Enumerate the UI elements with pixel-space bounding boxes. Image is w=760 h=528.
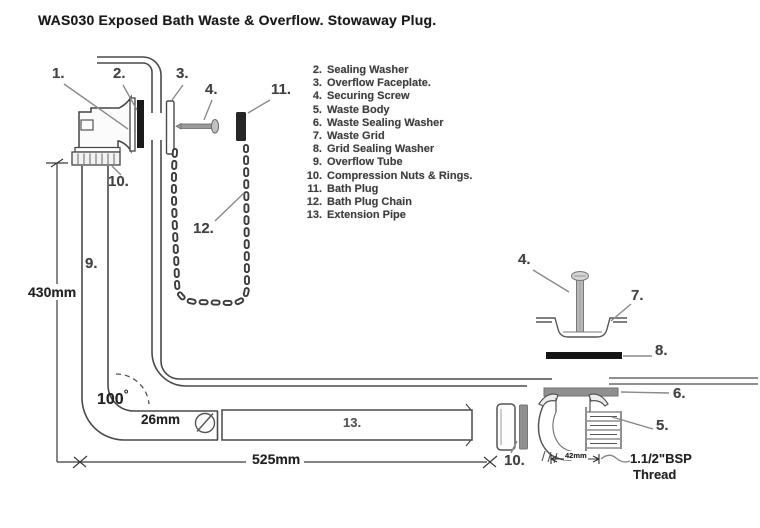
diameter-symbol xyxy=(196,414,215,433)
callout-7-waste-grid: 7. xyxy=(631,287,644,304)
diagram-title: WAS030 Exposed Bath Waste & Overflow. St… xyxy=(38,12,436,28)
parts-list-item: 4.Securing Screw xyxy=(298,90,472,103)
waste-screw-drawing xyxy=(572,272,589,333)
parts-list-item: 11.Bath Plug xyxy=(298,183,472,196)
parts-list-item: 12.Bath Plug Chain xyxy=(298,196,472,209)
degree-symbol: ° xyxy=(124,387,129,401)
parts-list-item: 5.Waste Body xyxy=(298,104,472,117)
grid-sealing-washer-drawing xyxy=(546,352,622,359)
bsp-thread-label-line1: 1.1/2"BSP xyxy=(630,451,692,466)
callout-3-overflow-faceplate: 3. xyxy=(176,65,189,82)
callout-10-compression-nut: 10. xyxy=(108,173,129,190)
parts-list-item: 9.Overflow Tube xyxy=(298,156,472,169)
dim-42mm-label: 42mm xyxy=(564,451,588,460)
callout-8-grid-washer: 8. xyxy=(655,342,668,359)
callout-10-compression-nut-right: 10. xyxy=(504,452,525,469)
callout-5-waste-body: 5. xyxy=(656,417,669,434)
callout-11-bath-plug: 11. xyxy=(271,81,291,98)
overflow-elbow-drawing xyxy=(72,97,135,165)
parts-list-item: 2.Sealing Washer xyxy=(298,64,472,77)
callout-9-overflow-tube: 9. xyxy=(85,255,98,272)
parts-list-item: 7.Waste Grid xyxy=(298,130,472,143)
dim-100deg-label: 100° xyxy=(97,387,129,409)
callout-12-bath-plug-chain: 12. xyxy=(193,220,214,237)
parts-list-item: 13.Extension Pipe xyxy=(298,209,472,222)
callout-4-securing-screw: 4. xyxy=(205,81,218,98)
callout-13-extension-pipe: 13. xyxy=(343,415,361,430)
compression-nut-right-drawing xyxy=(497,404,528,450)
parts-list-item: 10.Compression Nuts & Rings. xyxy=(298,170,472,183)
parts-list-item: 3.Overflow Faceplate. xyxy=(298,77,472,90)
securing-screw-drawing xyxy=(176,120,219,134)
dim-430-lines xyxy=(46,159,68,462)
dim-430mm-label: 430mm xyxy=(26,284,78,300)
sealing-washer-drawing xyxy=(137,100,144,148)
parts-list-item: 6.Waste Sealing Washer xyxy=(298,117,472,130)
bath-plug-drawing xyxy=(236,112,246,141)
callout-2-sealing-washer: 2. xyxy=(113,65,126,82)
overflow-faceplate-drawing xyxy=(167,101,175,154)
parts-list-item: 8.Grid Sealing Washer xyxy=(298,143,472,156)
bsp-thread-label-line2: Thread xyxy=(633,467,676,482)
compression-nut-elbow-drawing xyxy=(72,152,120,165)
callout-4-waste-screw: 4. xyxy=(518,251,531,268)
dim-26mm-label: 26mm xyxy=(141,412,180,427)
callout-1-overflow-elbow: 1. xyxy=(52,65,65,82)
diagram-canvas: WAS030 Exposed Bath Waste & Overflow. St… xyxy=(0,0,760,528)
parts-list: 2.Sealing Washer 3.Overflow Faceplate. 4… xyxy=(298,64,472,222)
callout-6-waste-washer: 6. xyxy=(673,385,686,402)
dim-525mm-label: 525mm xyxy=(250,451,302,467)
